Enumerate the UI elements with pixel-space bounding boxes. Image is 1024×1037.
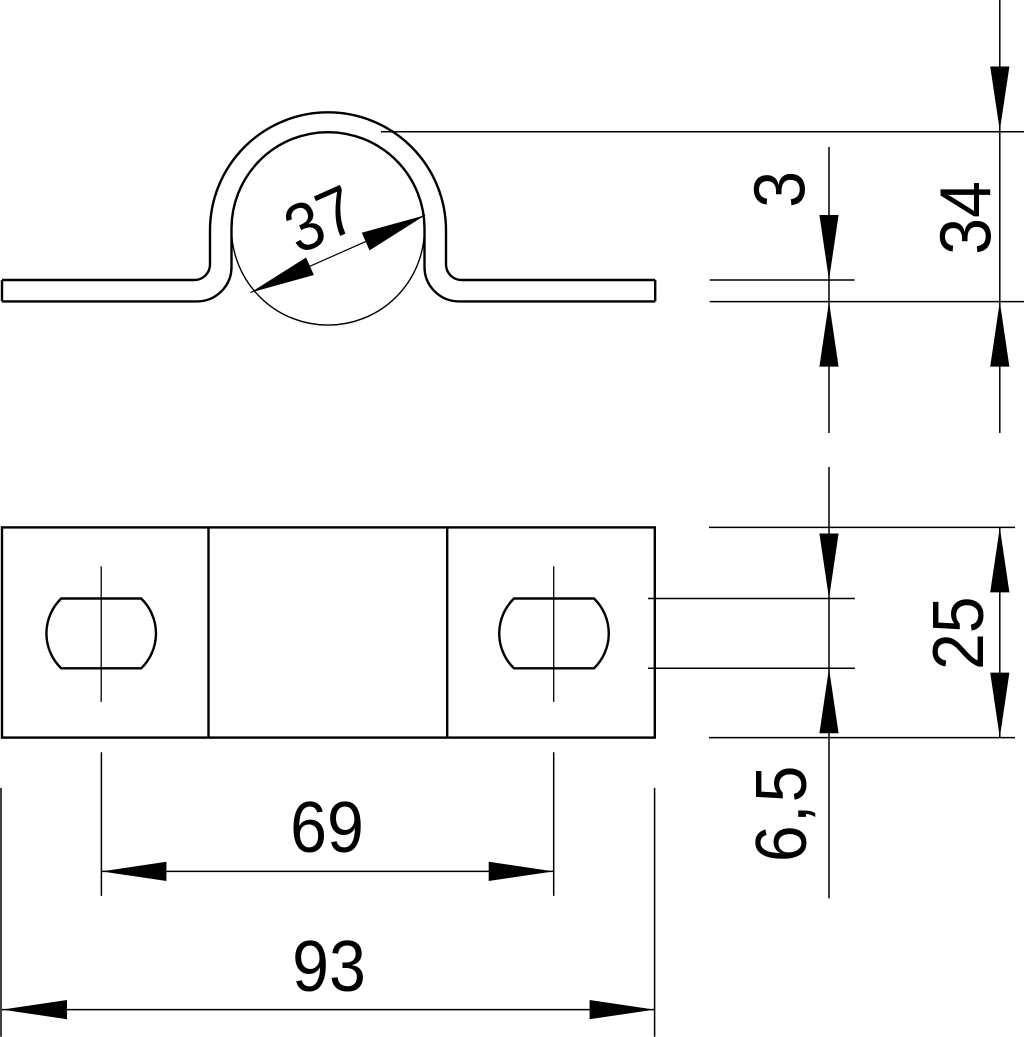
svg-text:69: 69 [290,787,364,868]
svg-text:93: 93 [292,925,366,1006]
svg-text:6,5: 6,5 [740,763,821,862]
svg-text:3: 3 [739,171,820,208]
svg-text:34: 34 [925,181,1006,255]
svg-text:25: 25 [917,596,998,670]
